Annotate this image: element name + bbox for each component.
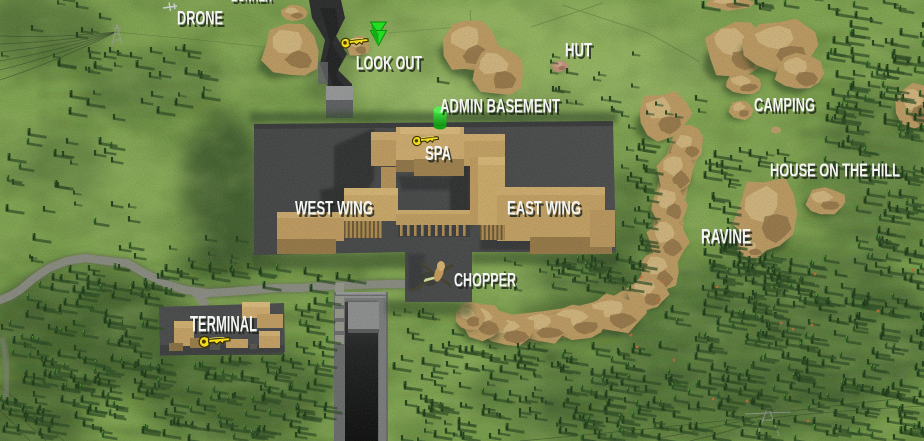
svg-text:TERMINAL: TERMINAL [190,312,257,337]
svg-text:RAVINE: RAVINE [701,225,751,249]
svg-text:WEST WING: WEST WING [295,198,373,220]
svg-text:HOUSE ON THE HILL: HOUSE ON THE HILL [770,160,900,181]
svg-text:BUNKER: BUNKER [231,0,272,6]
svg-text:DRONE: DRONE [177,9,223,30]
svg-text:CHOPPER: CHOPPER [454,270,516,292]
svg-text:ADMIN BASEMENT: ADMIN BASEMENT [440,96,560,118]
svg-text:EAST WING: EAST WING [507,198,581,220]
svg-text:SPA: SPA [425,142,451,165]
svg-text:CAMPING: CAMPING [754,95,815,117]
svg-text:HUT: HUT [565,40,592,62]
svg-text:LOOK OUT: LOOK OUT [356,53,422,75]
